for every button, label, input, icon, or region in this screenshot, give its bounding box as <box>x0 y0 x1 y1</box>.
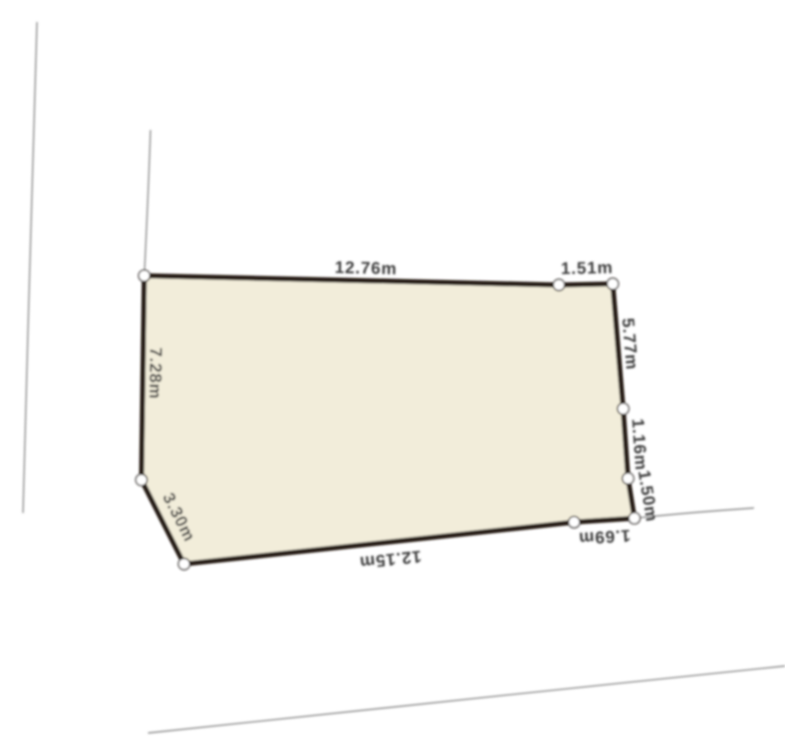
svg-text:12.76m: 12.76m <box>335 258 398 278</box>
svg-text:1.16m: 1.16m <box>628 418 651 471</box>
svg-text:1.69m: 1.69m <box>578 526 631 548</box>
svg-text:1.51m: 1.51m <box>561 258 614 278</box>
svg-text:7.28m: 7.28m <box>146 347 166 399</box>
svg-text:12.15m: 12.15m <box>358 547 422 573</box>
